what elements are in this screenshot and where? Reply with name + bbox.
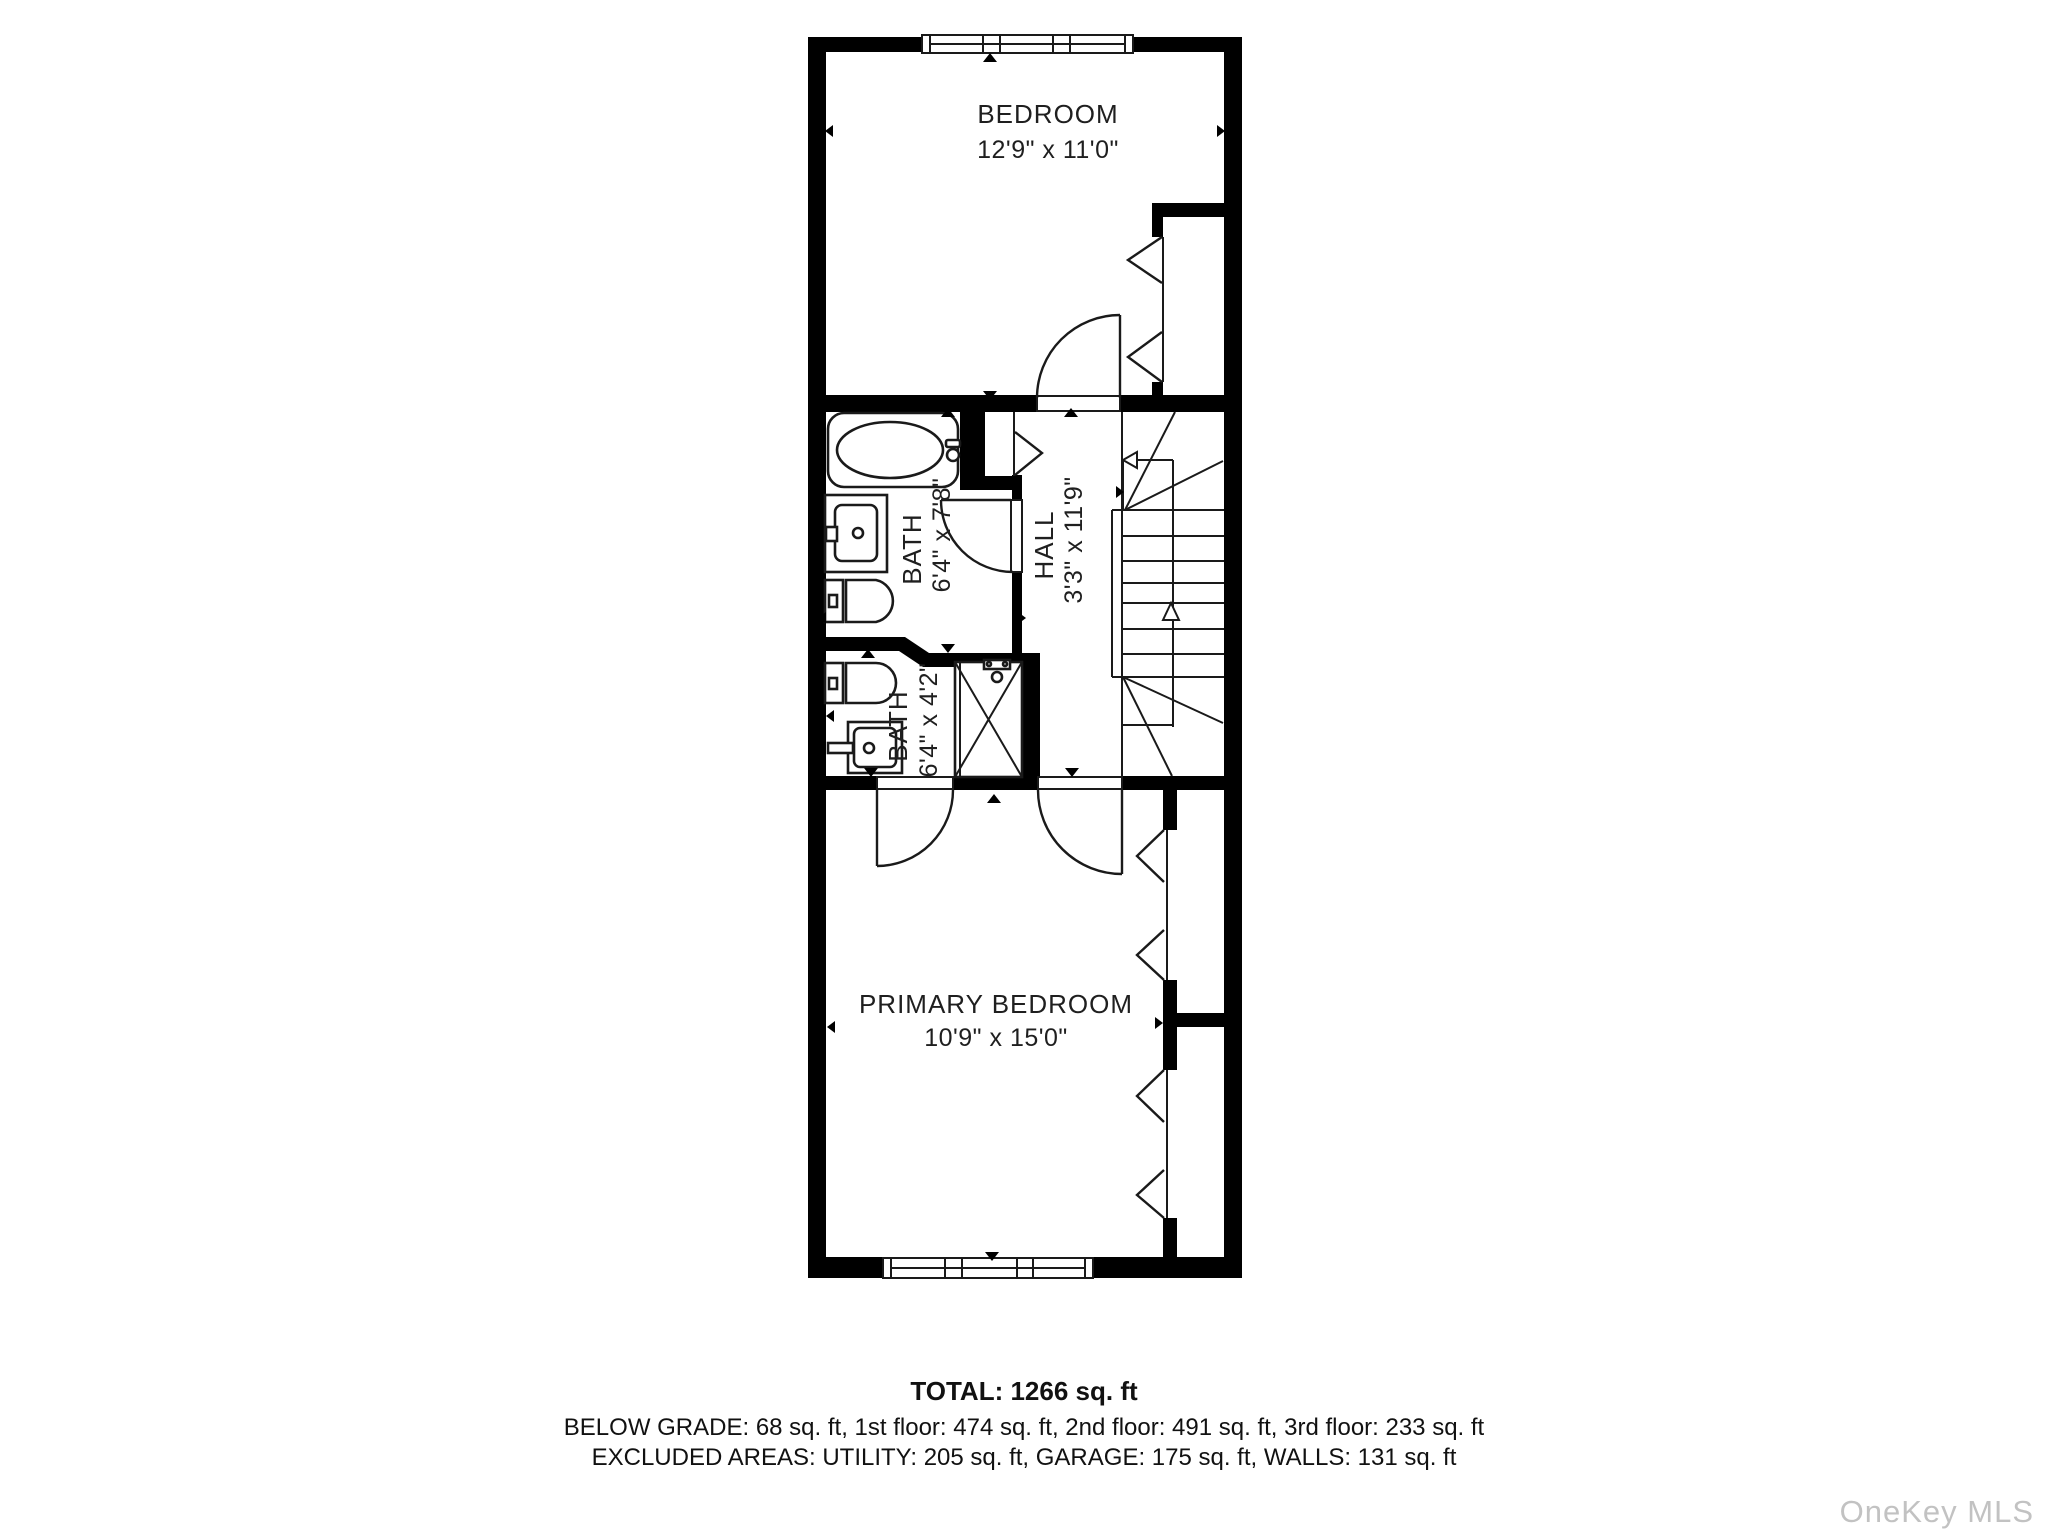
upper-bath-sink-icon — [825, 495, 887, 572]
bedroom-closet-bifold — [1128, 237, 1163, 382]
floorplan-page: BEDROOM 12'9" x 11'0" BATH 6'4" x 7'8" H… — [0, 0, 2048, 1536]
primary-closet-upper-bifold — [1137, 830, 1167, 980]
bedroom-label: BEDROOM — [977, 99, 1118, 129]
top-window — [922, 35, 1133, 53]
shower-icon — [955, 660, 1022, 777]
bathtub-icon — [828, 413, 960, 487]
primary-bedroom-dims: 10'9" x 15'0" — [924, 1024, 1068, 1052]
hall-label: HALL — [1029, 510, 1059, 579]
upper-bath-toilet-icon — [825, 580, 893, 622]
primary-closet-lower-bifold — [1137, 1070, 1167, 1218]
excluded-areas: EXCLUDED AREAS: UTILITY: 205 sq. ft, GAR… — [0, 1443, 2048, 1473]
bedroom-dims: 12'9" x 11'0" — [977, 136, 1119, 164]
bottom-window — [883, 1258, 1093, 1278]
upper-bath-label: BATH — [897, 513, 927, 584]
total-area: TOTAL: 1266 sq. ft — [0, 1376, 2048, 1407]
hall-dims: 3'3" x 11'9" — [1060, 476, 1088, 603]
upper-bath-dims: 6'4" x 7'8" — [928, 478, 956, 593]
hall-closet-bifold — [1014, 412, 1042, 476]
stair-arrow-left-icon — [1123, 452, 1137, 468]
staircase — [1112, 412, 1224, 776]
area-summary: TOTAL: 1266 sq. ft BELOW GRADE: 68 sq. f… — [0, 1376, 2048, 1473]
primary-bedroom-label: PRIMARY BEDROOM — [859, 989, 1133, 1019]
lower-bath-label: BATH — [883, 690, 913, 761]
hall-to-primary-door — [1038, 777, 1122, 874]
bedroom-door — [1037, 315, 1120, 411]
floor-areas: BELOW GRADE: 68 sq. ft, 1st floor: 474 s… — [0, 1413, 2048, 1443]
lower-bath-to-primary-door — [877, 777, 953, 866]
floorplan-drawing: BEDROOM 12'9" x 11'0" BATH 6'4" x 7'8" H… — [0, 0, 2048, 1536]
lower-bath-dims: 6'4" x 4'2" — [915, 663, 943, 778]
onekey-mls-watermark: OneKey MLS — [1840, 1494, 2034, 1530]
stair-arrow-up-icon — [1163, 603, 1179, 620]
